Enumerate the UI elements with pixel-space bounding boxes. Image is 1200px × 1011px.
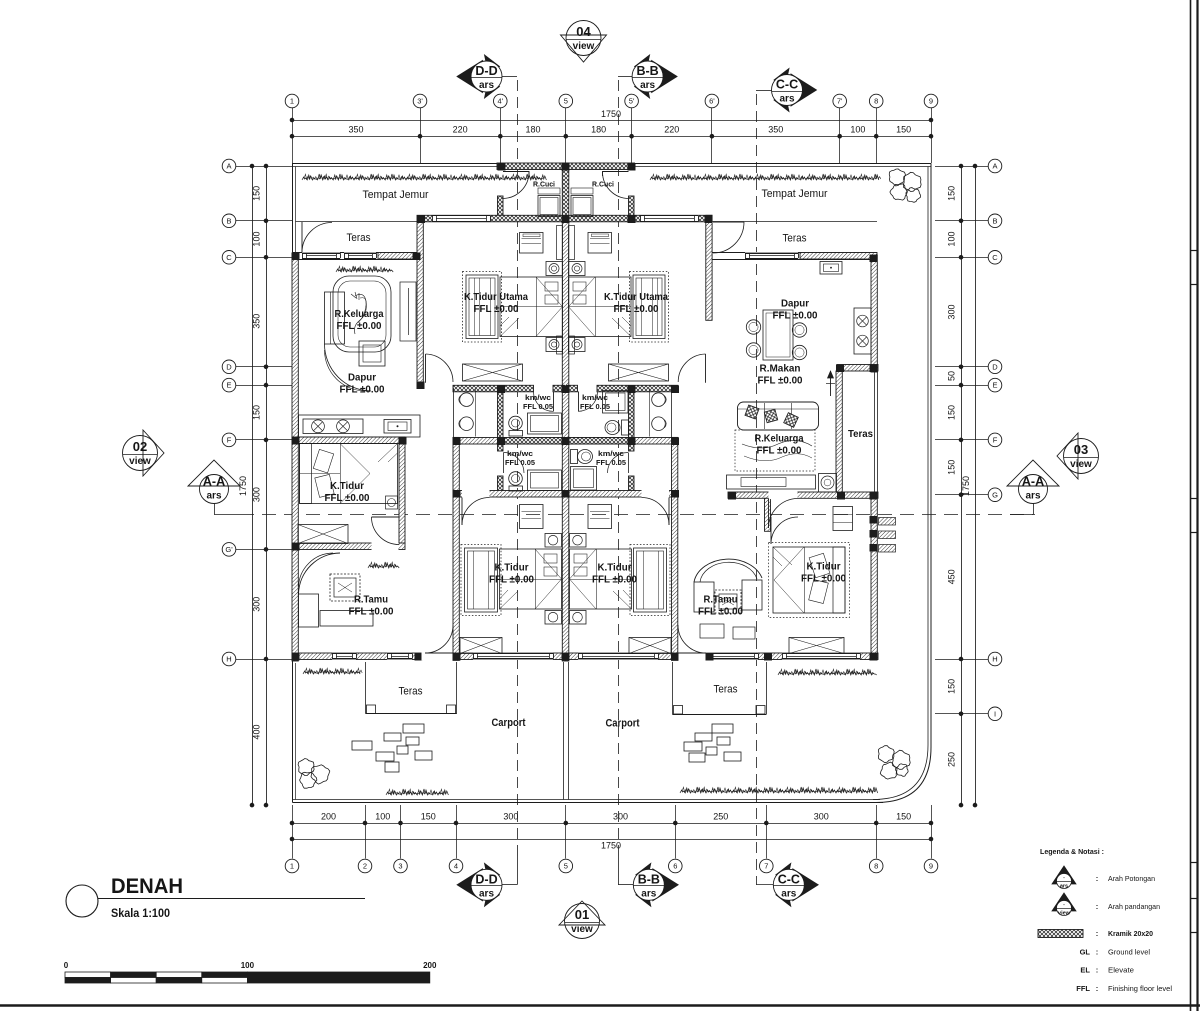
svg-text:ars: ars <box>1060 884 1068 890</box>
svg-text:180: 180 <box>591 125 606 135</box>
svg-text:A: A <box>226 162 231 171</box>
svg-text:R.Cuci: R.Cuci <box>592 180 614 189</box>
svg-text:FFL ±0.00: FFL ±0.00 <box>773 310 818 322</box>
svg-text:K.Tidur: K.Tidur <box>330 480 364 492</box>
svg-text:Skala 1:100: Skala 1:100 <box>111 908 170 920</box>
svg-text:1750: 1750 <box>961 476 971 496</box>
svg-text:R.Tamu: R.Tamu <box>704 594 738 606</box>
svg-text:220: 220 <box>453 125 468 135</box>
svg-text:G: G <box>992 490 998 499</box>
svg-text:A-A: A-A <box>1022 475 1044 489</box>
svg-text:8: 8 <box>874 862 878 871</box>
svg-text:R.Cuci: R.Cuci <box>533 180 555 189</box>
svg-text:1: 1 <box>290 97 294 106</box>
svg-text:9: 9 <box>929 97 933 106</box>
svg-text:100: 100 <box>947 232 957 247</box>
svg-text:3': 3' <box>417 97 423 106</box>
svg-text:Teras: Teras <box>783 233 807 245</box>
svg-text:7': 7' <box>837 97 843 106</box>
svg-text:6': 6' <box>709 97 715 106</box>
svg-text:R.Makan: R.Makan <box>760 363 801 375</box>
svg-text:D-D: D-D <box>475 64 497 78</box>
svg-text:150: 150 <box>896 812 911 822</box>
svg-text:Dapur: Dapur <box>348 372 376 384</box>
svg-text:4: 4 <box>454 862 458 871</box>
svg-text:5: 5 <box>564 97 568 106</box>
svg-text:K.Tidur Utama: K.Tidur Utama <box>464 291 528 303</box>
svg-text:350: 350 <box>252 314 262 329</box>
svg-text:FFL ±0.00: FFL ±0.00 <box>592 574 637 586</box>
svg-text:FFL: FFL <box>1076 984 1090 993</box>
svg-text:100: 100 <box>252 232 262 247</box>
svg-text:I: I <box>994 709 996 718</box>
svg-text:FFL ±0.00: FFL ±0.00 <box>489 574 534 586</box>
svg-text:C: C <box>992 253 998 262</box>
svg-text:300: 300 <box>252 597 262 612</box>
svg-text:9: 9 <box>929 862 933 871</box>
svg-text:100: 100 <box>241 961 255 970</box>
svg-text:FFL ±0.00: FFL ±0.00 <box>758 375 803 387</box>
svg-text:Ground level: Ground level <box>1108 948 1150 957</box>
svg-text:R.Keluarga: R.Keluarga <box>335 308 384 320</box>
svg-text:Elevate: Elevate <box>1108 966 1134 975</box>
svg-text:FFL ±0.00: FFL ±0.00 <box>337 320 382 332</box>
svg-text:E: E <box>992 381 997 390</box>
svg-text:FFL ±0.00: FFL ±0.00 <box>349 606 394 618</box>
svg-text:Tempat Jemur: Tempat Jemur <box>363 189 429 201</box>
svg-text:D: D <box>992 362 998 371</box>
svg-text:A-A: A-A <box>203 475 225 489</box>
svg-text:ars: ars <box>479 80 494 91</box>
svg-text:km/wc: km/wc <box>598 449 624 458</box>
svg-text:150: 150 <box>421 812 436 822</box>
svg-text:GL: GL <box>1080 948 1091 957</box>
svg-text:C-C: C-C <box>778 872 800 886</box>
svg-text:DENAH: DENAH <box>111 875 183 898</box>
svg-text:150: 150 <box>252 186 262 201</box>
svg-text:D-D: D-D <box>475 872 497 886</box>
svg-text:300: 300 <box>613 812 628 822</box>
svg-text:150: 150 <box>896 125 911 135</box>
svg-text:250: 250 <box>947 752 957 767</box>
svg-text:Teras: Teras <box>714 684 738 696</box>
svg-text:400: 400 <box>252 725 262 740</box>
svg-text:C: C <box>226 253 232 262</box>
svg-text:150: 150 <box>947 405 957 420</box>
svg-text:B: B <box>992 216 997 225</box>
svg-text::: : <box>1096 984 1099 993</box>
svg-text:6: 6 <box>673 862 677 871</box>
svg-text:220: 220 <box>664 125 679 135</box>
svg-text:E: E <box>226 381 231 390</box>
svg-text:Teras: Teras <box>399 686 423 698</box>
svg-text:350: 350 <box>768 125 783 135</box>
svg-text:F: F <box>993 436 998 445</box>
svg-text:FFL ±0.00: FFL ±0.00 <box>698 606 743 618</box>
svg-text:150: 150 <box>947 679 957 694</box>
svg-text:5': 5' <box>629 97 635 106</box>
svg-text:Kramik 20x20: Kramik 20x20 <box>1108 929 1153 938</box>
svg-text:FFL ±0.00: FFL ±0.00 <box>801 573 846 585</box>
svg-text:ars: ars <box>641 888 656 899</box>
svg-text:Dapur: Dapur <box>781 298 809 310</box>
svg-text:FFL 0.05: FFL 0.05 <box>505 458 535 467</box>
svg-text:km/wc: km/wc <box>525 393 551 402</box>
svg-text::: : <box>1096 929 1099 938</box>
svg-text:100: 100 <box>375 812 390 822</box>
svg-text:R.Tamu: R.Tamu <box>354 594 388 606</box>
svg-text:FFL 0.05: FFL 0.05 <box>523 402 553 411</box>
svg-text:H: H <box>992 655 997 664</box>
svg-text:km/wc: km/wc <box>582 393 608 402</box>
svg-text:02: 02 <box>133 439 147 454</box>
svg-text:FFL ±0.00: FFL ±0.00 <box>614 303 659 315</box>
svg-text:180: 180 <box>526 125 541 135</box>
svg-text:250: 250 <box>713 812 728 822</box>
svg-text:R.Keluarga: R.Keluarga <box>755 433 804 445</box>
svg-text:7: 7 <box>764 862 768 871</box>
svg-text:300: 300 <box>947 305 957 320</box>
svg-text:G': G' <box>225 545 233 554</box>
svg-text:300: 300 <box>252 487 262 502</box>
svg-text:-: - <box>1063 903 1065 909</box>
svg-text:D: D <box>226 362 232 371</box>
svg-text:B-B: B-B <box>638 872 660 886</box>
svg-text:150: 150 <box>947 186 957 201</box>
svg-text::: : <box>1096 948 1099 957</box>
svg-text:K.Tidur: K.Tidur <box>495 562 529 574</box>
svg-text:FFL ±0.00: FFL ±0.00 <box>325 492 370 504</box>
svg-text:H: H <box>226 655 231 664</box>
svg-text:Tempat Jemur: Tempat Jemur <box>762 188 828 200</box>
svg-text:200: 200 <box>423 961 437 970</box>
svg-text:Carport: Carport <box>492 717 526 729</box>
svg-text::: : <box>1096 966 1099 975</box>
svg-text:-: - <box>1063 876 1065 882</box>
svg-text:0: 0 <box>64 961 69 970</box>
svg-text:EL: EL <box>1080 966 1090 975</box>
svg-text:01: 01 <box>575 907 589 922</box>
svg-text:view: view <box>573 41 595 52</box>
svg-text:1750: 1750 <box>601 841 621 851</box>
svg-text:2: 2 <box>363 862 367 871</box>
svg-text:150: 150 <box>252 405 262 420</box>
svg-text:Legenda & Notasi :: Legenda & Notasi : <box>1040 847 1104 856</box>
svg-text:C-C: C-C <box>776 78 798 92</box>
svg-text:K.Tidur Utama: K.Tidur Utama <box>604 291 668 303</box>
svg-text:view: view <box>1070 459 1092 470</box>
svg-text:K.Tidur: K.Tidur <box>598 562 632 574</box>
svg-text:view: view <box>129 456 151 467</box>
svg-text:F: F <box>227 436 232 445</box>
svg-text:B: B <box>226 216 231 225</box>
svg-text:Finishing floor level: Finishing floor level <box>1108 984 1172 993</box>
svg-text:K.Tidur: K.Tidur <box>807 561 841 573</box>
svg-text:300: 300 <box>503 812 518 822</box>
svg-text:150: 150 <box>947 460 957 475</box>
svg-text:Teras: Teras <box>848 428 873 440</box>
svg-text:FFL 0.05: FFL 0.05 <box>596 458 626 467</box>
svg-text:Carport: Carport <box>606 718 640 730</box>
svg-text:8: 8 <box>874 97 878 106</box>
svg-text::: : <box>1096 902 1099 911</box>
svg-text:ars: ars <box>1025 491 1040 502</box>
svg-text:100: 100 <box>850 125 865 135</box>
svg-text:view: view <box>1058 911 1071 917</box>
svg-text:B-B: B-B <box>636 64 658 78</box>
svg-text:ars: ars <box>206 491 221 502</box>
svg-text:1: 1 <box>290 862 294 871</box>
svg-text::: : <box>1096 874 1099 883</box>
svg-text:Arah pandangan: Arah pandangan <box>1108 902 1160 911</box>
svg-text:FFL ±0.00: FFL ±0.00 <box>474 303 519 315</box>
svg-text:04: 04 <box>576 24 591 39</box>
svg-text:50: 50 <box>947 371 957 381</box>
svg-text:view: view <box>571 924 593 935</box>
svg-text:1750: 1750 <box>601 109 621 119</box>
svg-text:450: 450 <box>947 569 957 584</box>
svg-text:ars: ars <box>640 80 655 91</box>
svg-text:ars: ars <box>479 888 494 899</box>
svg-text:3: 3 <box>398 862 402 871</box>
svg-text:4': 4' <box>497 97 503 106</box>
svg-text:200: 200 <box>321 812 336 822</box>
svg-text:ars: ars <box>779 94 794 105</box>
svg-text:Arah Potongan: Arah Potongan <box>1108 874 1155 883</box>
svg-text:300: 300 <box>814 812 829 822</box>
svg-text:A: A <box>992 162 997 171</box>
svg-text:03: 03 <box>1074 442 1088 457</box>
svg-text:ars: ars <box>781 888 796 899</box>
svg-text:FFL ±0.00: FFL ±0.00 <box>340 384 385 396</box>
svg-text:Teras: Teras <box>347 232 371 244</box>
svg-text:FFL ±0.00: FFL ±0.00 <box>757 445 802 457</box>
svg-text:5: 5 <box>564 862 568 871</box>
svg-text:350: 350 <box>348 125 363 135</box>
